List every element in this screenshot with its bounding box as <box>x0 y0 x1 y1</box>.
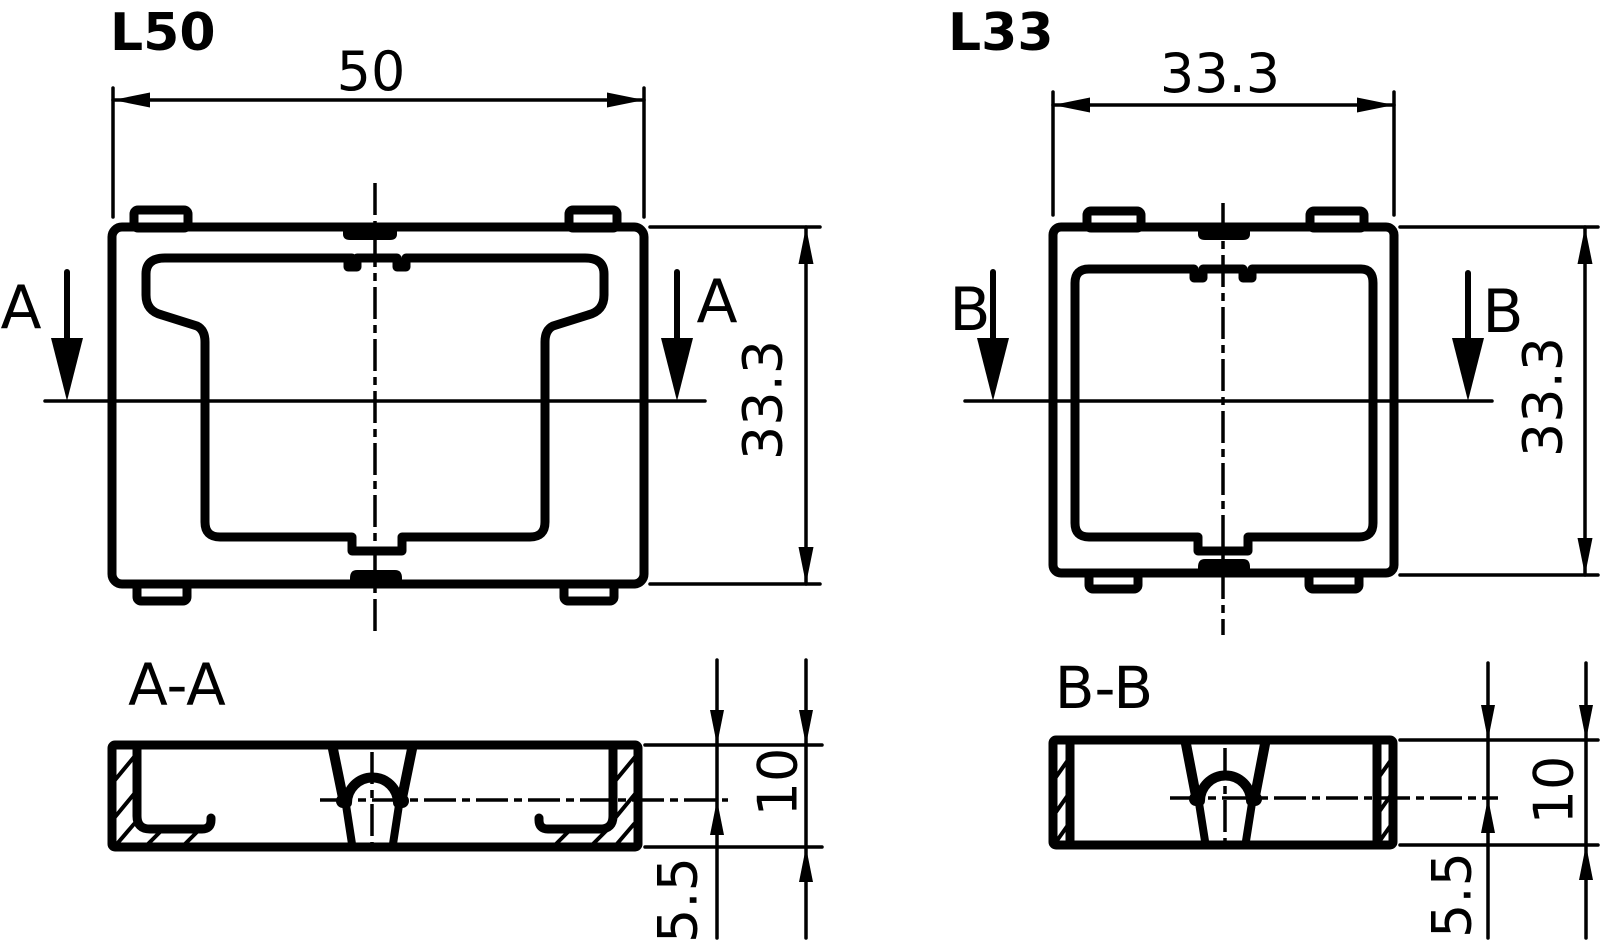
l50-tab-top-left <box>134 210 188 228</box>
arrowhead-top <box>710 710 724 745</box>
bb-body-outline <box>1053 740 1393 845</box>
section-letter-a-right: A <box>696 267 737 337</box>
l50-tab-bottom-right <box>564 584 614 601</box>
arrowhead-bottom <box>1481 798 1495 833</box>
section-arrow-left <box>51 338 83 401</box>
arrowhead-bottom <box>799 847 813 882</box>
aa-left-wall-hook <box>137 745 211 829</box>
l33-tab-top-left <box>1087 211 1141 228</box>
section-arrow-right <box>661 338 693 401</box>
section-view-b-b: B-B <box>1053 654 1598 938</box>
dim-value-33-3: 33.3 <box>1160 42 1280 105</box>
l50-body-outline <box>112 227 644 584</box>
section-letter-a-left: A <box>0 273 41 343</box>
section-view-a-a: A-A <box>112 651 822 942</box>
arrowhead-top <box>1579 705 1593 740</box>
arrowhead-top <box>1578 227 1593 264</box>
part-label-l33: L33 <box>948 3 1054 63</box>
dim-value-10: 10 <box>1523 756 1586 825</box>
l33-section-cut-b: B B <box>949 272 1523 401</box>
arrowhead-bottom <box>1579 845 1593 880</box>
dim-value-10: 10 <box>747 748 810 817</box>
l33-width-dimension: 33.3 <box>1053 42 1394 215</box>
section-letter-b-right: B <box>1482 277 1523 347</box>
l33-tab-top-right <box>1310 211 1364 228</box>
l50-top-view: L50 50 33.3 <box>0 3 820 632</box>
section-title-a-a: A-A <box>128 651 226 719</box>
dimension-drawing: L50 50 33.3 <box>0 0 1600 942</box>
l33-tab-bottom-left <box>1089 573 1138 589</box>
l50-interlock-bar-top <box>343 224 397 240</box>
aa-hatching <box>115 757 635 849</box>
aa-right-wall-hook <box>539 745 613 829</box>
dim-value-5-5: 5.5 <box>647 857 710 942</box>
section-arrow-right <box>1452 338 1484 401</box>
l33-tab-bottom-right <box>1309 573 1359 589</box>
dim-value-33-3: 33.3 <box>732 340 795 460</box>
section-letter-b-left: B <box>949 275 990 345</box>
section-arrow-left <box>977 338 1009 401</box>
dim-value-33-3: 33.3 <box>1512 337 1575 457</box>
arrowhead-top <box>799 710 813 745</box>
l50-tab-top-right <box>569 210 617 228</box>
l50-tab-bottom-left <box>137 584 187 601</box>
arrowhead-left <box>113 93 150 108</box>
technical-drawing-page: L50 50 33.3 <box>0 0 1600 942</box>
dim-value-5-5: 5.5 <box>1421 852 1484 938</box>
section-title-b-b: B-B <box>1055 654 1153 722</box>
part-label-l50: L50 <box>110 3 216 63</box>
arrowhead-right <box>1357 98 1394 113</box>
l50-width-dimension: 50 <box>113 40 644 217</box>
bb-base-dimension: 5.5 <box>1421 663 1496 938</box>
arrowhead-top <box>1481 705 1495 740</box>
arrowhead-bottom <box>799 547 814 584</box>
arrowhead-bottom <box>1578 538 1593 575</box>
arrowhead-bottom <box>710 800 724 835</box>
dim-value-50: 50 <box>337 40 406 103</box>
arrowhead-left <box>1053 98 1090 113</box>
l33-top-view: L33 33.3 33.3 <box>948 3 1598 635</box>
arrowhead-top <box>799 227 814 264</box>
arrowhead-right <box>607 93 644 108</box>
